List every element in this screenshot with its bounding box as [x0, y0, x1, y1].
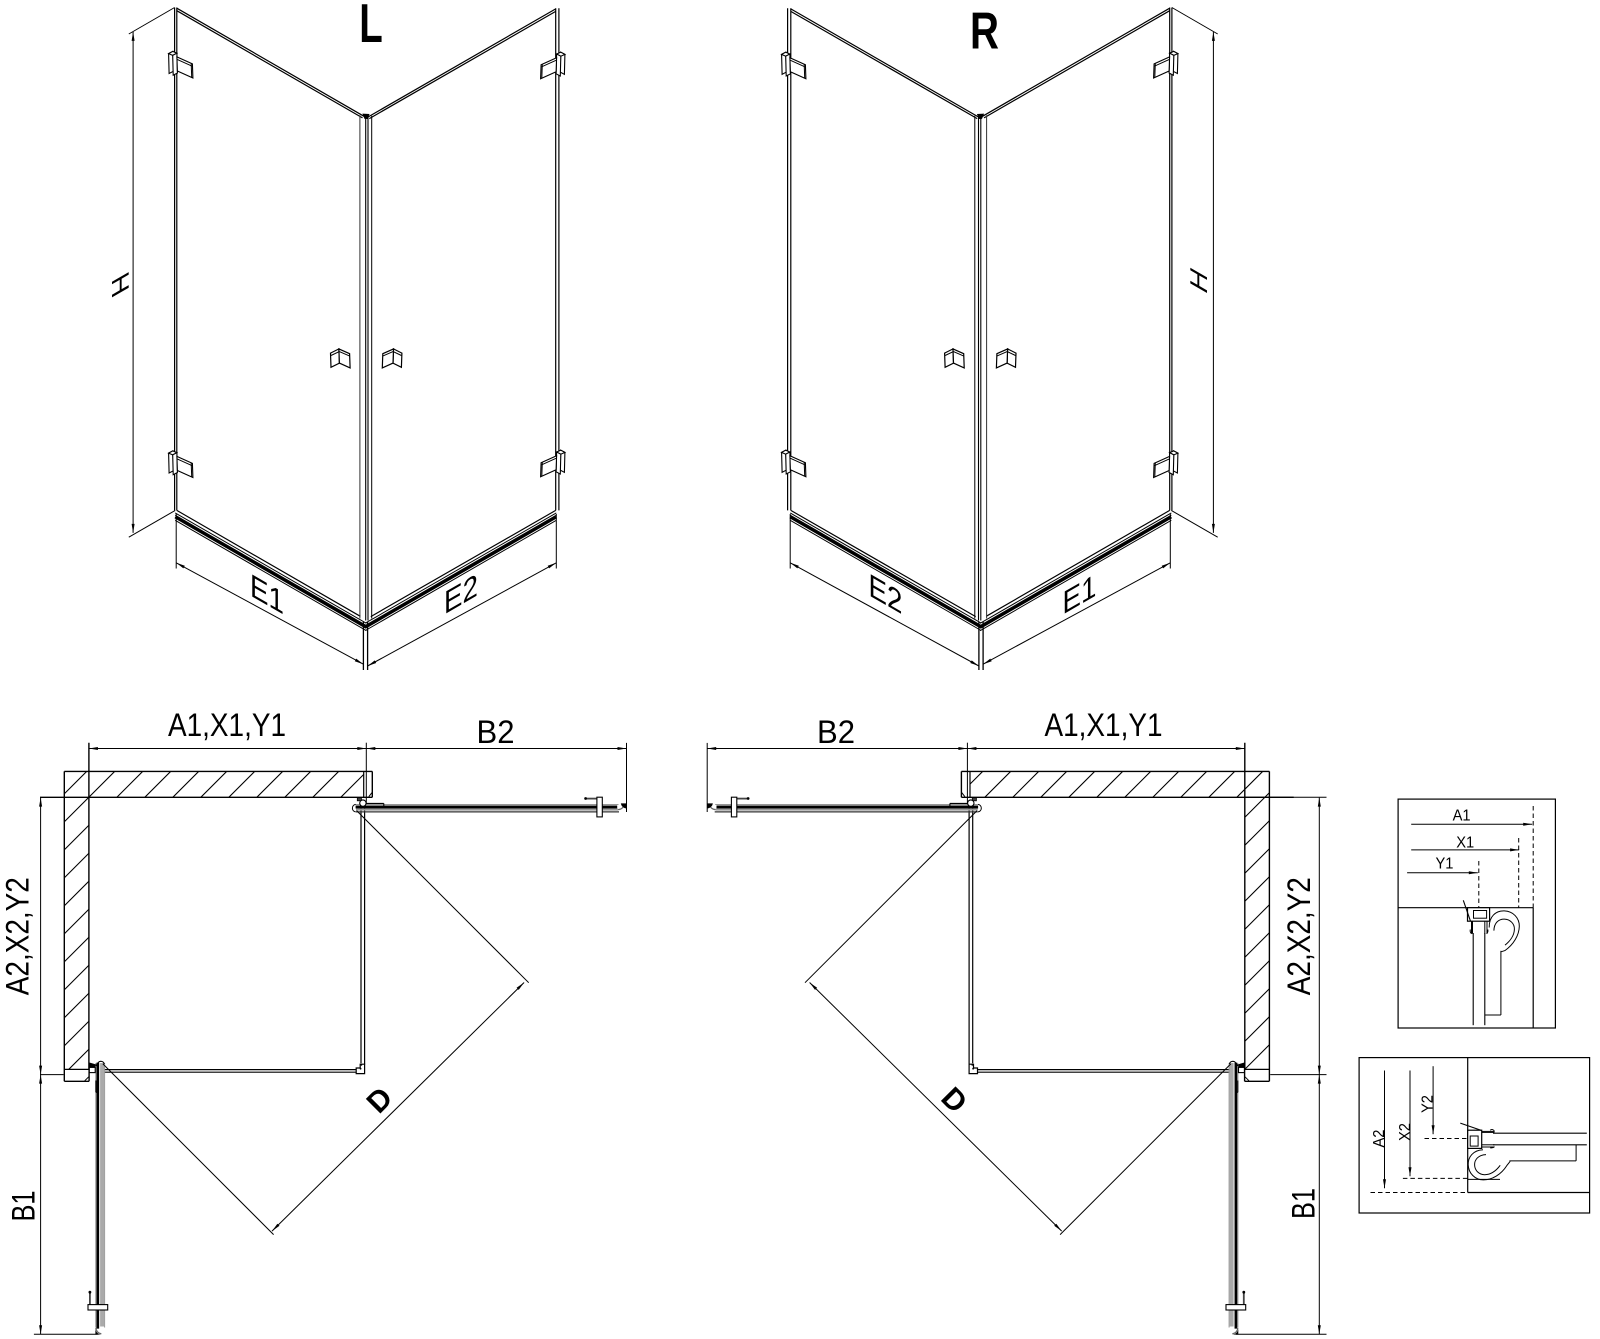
svg-text:A1,X1,Y1: A1,X1,Y1 — [168, 707, 286, 743]
svg-text:L: L — [359, 0, 383, 54]
svg-text:B1: B1 — [1286, 1188, 1322, 1219]
svg-text:A1: A1 — [1453, 807, 1471, 824]
svg-text:A2: A2 — [1371, 1130, 1388, 1148]
svg-text:B1: B1 — [6, 1191, 42, 1222]
svg-text:A2,X2,Y2: A2,X2,Y2 — [0, 877, 36, 995]
svg-text:B2: B2 — [817, 714, 855, 750]
svg-text:R: R — [970, 2, 999, 60]
svg-text:Y2: Y2 — [1419, 1095, 1436, 1113]
svg-text:Y1: Y1 — [1436, 856, 1454, 873]
svg-text:X1: X1 — [1456, 835, 1474, 852]
svg-text:B2: B2 — [477, 714, 515, 750]
svg-text:A2,X2,Y2: A2,X2,Y2 — [1281, 877, 1317, 995]
svg-text:A1,X1,Y1: A1,X1,Y1 — [1045, 707, 1163, 743]
svg-text:X2: X2 — [1397, 1123, 1414, 1141]
